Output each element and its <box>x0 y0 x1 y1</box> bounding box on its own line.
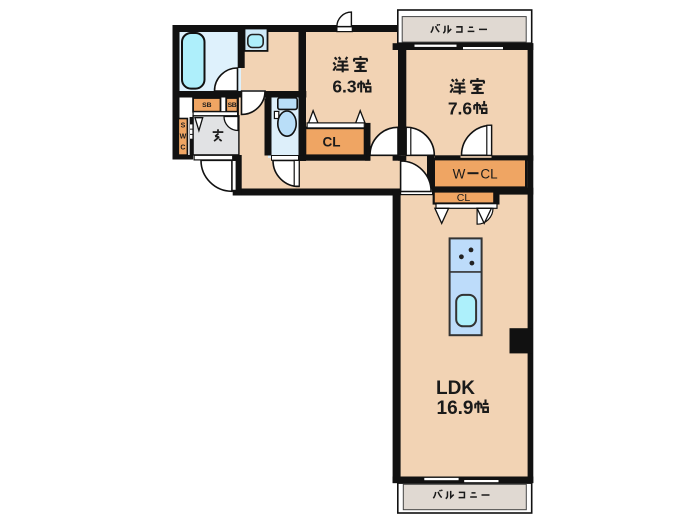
svg-text:CL: CL <box>457 192 471 204</box>
svg-text:16.9: 16.9 <box>437 398 474 419</box>
svg-text:LDK: LDK <box>436 378 475 399</box>
svg-text:SB: SB <box>228 102 237 109</box>
svg-text:CL: CL <box>323 135 341 150</box>
svg-text:CL: CL <box>480 167 498 182</box>
svg-text:W: W <box>453 167 466 182</box>
svg-text:S: S <box>181 123 186 130</box>
svg-text:C: C <box>180 145 185 152</box>
svg-text:SB: SB <box>202 102 212 109</box>
svg-text:W: W <box>180 134 187 141</box>
svg-text:6.3: 6.3 <box>332 77 357 97</box>
svg-text:7.6: 7.6 <box>448 99 473 119</box>
